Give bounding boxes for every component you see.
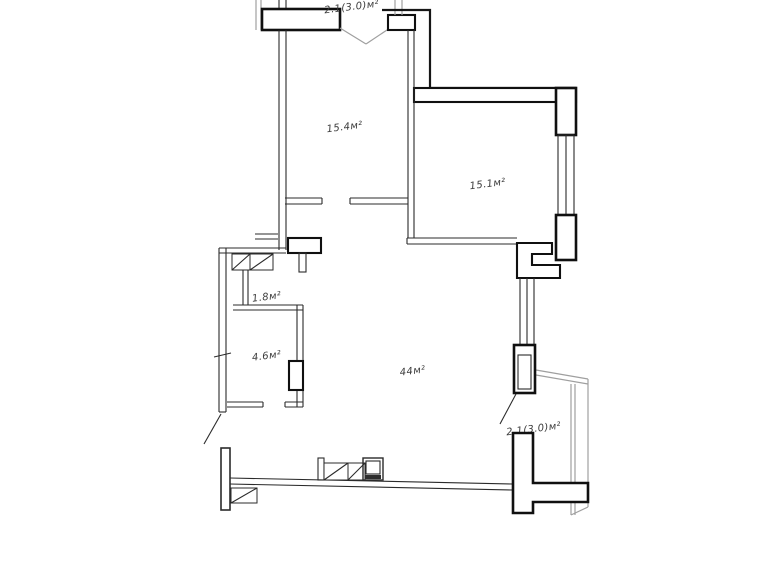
balcony-top: 2.1(3.0)м²	[256, 0, 415, 44]
bottom-right-pier	[513, 433, 588, 513]
floor-plan-page: 2.1(3.0)м² 15.4м²	[0, 0, 780, 580]
balcony-outline	[571, 507, 588, 515]
wall-stub	[279, 0, 286, 9]
balcony-door-block	[500, 345, 535, 424]
entrance	[204, 414, 230, 510]
wall-line	[230, 484, 513, 490]
label-room-15-4: 15.4м²	[326, 120, 363, 135]
room-15-1: 15.1м²	[407, 135, 576, 278]
bottom-wall	[230, 458, 513, 503]
label-living-kitchen: 44м²	[399, 364, 426, 378]
duct-block	[288, 238, 321, 253]
balcony-door-frame	[514, 345, 535, 393]
balcony-door-swing	[340, 28, 366, 44]
bath-fixture	[289, 361, 303, 390]
shaft-box-bar	[365, 475, 381, 479]
shaft-box-inner	[366, 461, 380, 474]
wall-post	[318, 458, 324, 480]
wall-step	[517, 243, 560, 278]
balcony-outline	[536, 370, 588, 379]
wall-pier	[513, 433, 588, 513]
hall-right-window	[520, 278, 534, 345]
wall-tick	[214, 353, 231, 357]
label-closet: 1.8м²	[251, 290, 282, 305]
wall-pier	[221, 448, 230, 510]
door-swing	[500, 394, 516, 424]
wall-segment	[414, 88, 576, 102]
living-kitchen: 44м²	[399, 364, 426, 378]
balcony-outline	[536, 375, 588, 384]
wall-pier	[556, 215, 576, 260]
room-15-4: 15.4м²	[279, 30, 414, 250]
entry-door-swing	[204, 414, 221, 444]
duct-stem	[299, 253, 306, 272]
balcony-wall-pier	[388, 15, 415, 30]
label-bathroom: 4.6м²	[251, 349, 282, 364]
service-zone: 1.8м² 4.6м²	[214, 234, 321, 412]
wall-pier	[556, 88, 576, 135]
floor-plan-drawing: 2.1(3.0)м² 15.4м²	[0, 0, 780, 580]
label-room-15-1: 15.1м²	[469, 177, 506, 192]
balcony-door-swing	[366, 28, 390, 44]
label-balcony-top: 2.1(3.0)м²	[324, 0, 380, 16]
